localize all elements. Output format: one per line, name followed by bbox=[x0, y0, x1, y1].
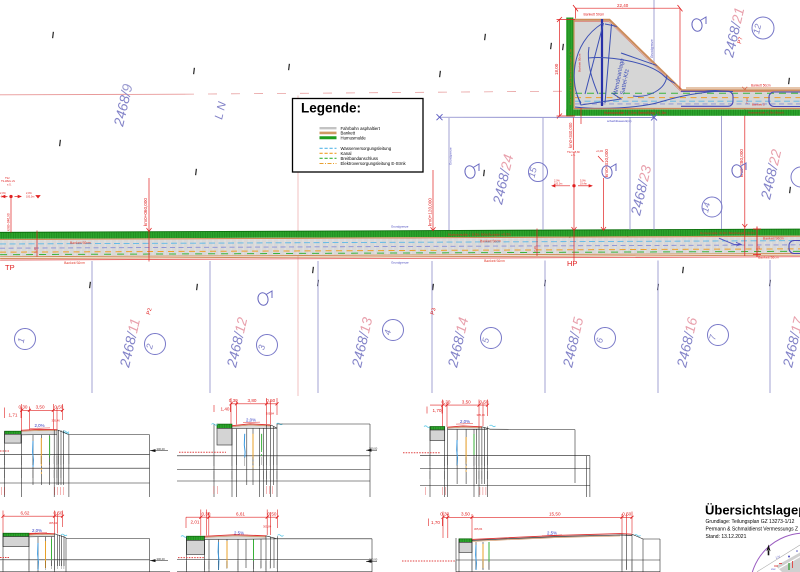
svg-text:18,00: 18,00 bbox=[554, 63, 559, 75]
svg-text:3,50: 3,50 bbox=[462, 400, 471, 405]
svg-text:+0,4%: +0,4% bbox=[596, 150, 604, 153]
svg-text:22,40: 22,40 bbox=[617, 3, 629, 8]
svg-text:305,84: 305,84 bbox=[263, 525, 272, 529]
svg-text:Humusmulde + 0,3m; Böschungen: Humusmulde + 0,3m; Böschungen +0,3m bbox=[448, 233, 511, 237]
svg-text:1,70: 1,70 bbox=[431, 520, 440, 525]
svg-text:7,10: 7,10 bbox=[745, 98, 749, 104]
svg-text:2,0%: 2,0% bbox=[32, 528, 42, 533]
svg-text:TP: TP bbox=[5, 263, 15, 272]
svg-text:15,50: 15,50 bbox=[549, 512, 561, 517]
svg-text:Humusmulde + 0,3m Berm/Böschu: Humusmulde + 0,3m Berm/Böschungen +1,3m bbox=[569, 48, 573, 105]
svg-text:0,30: 0,30 bbox=[19, 405, 28, 410]
svg-text:Bankett 50cm: Bankett 50cm bbox=[484, 259, 505, 263]
svg-text:0,30: 0,30 bbox=[229, 398, 238, 403]
svg-text:e.S.: e.S. bbox=[7, 183, 12, 186]
svg-text:1,70: 1,70 bbox=[433, 408, 442, 413]
svg-text:Übersichtslageplan: Übersichtslageplan bbox=[705, 503, 800, 518]
svg-text:3,50: 3,50 bbox=[36, 405, 45, 410]
svg-text:2,0%: 2,0% bbox=[460, 419, 470, 424]
svg-text:7,10: 7,10 bbox=[533, 246, 537, 252]
svg-text:3,80: 3,80 bbox=[248, 398, 257, 403]
svg-text:Grundgrenze: Grundgrenze bbox=[391, 261, 409, 265]
svg-text:2,0%: 2,0% bbox=[35, 423, 45, 428]
svg-text:305,46: 305,46 bbox=[477, 413, 486, 417]
svg-text:Legende:: Legende: bbox=[301, 101, 361, 116]
svg-text:19,4m: 19,4m bbox=[580, 183, 587, 186]
svg-text:Bankett 50cm: Bankett 50cm bbox=[763, 236, 784, 240]
svg-text:0,50: 0,50 bbox=[268, 512, 277, 517]
svg-text:0,50: 0,50 bbox=[480, 400, 489, 405]
svg-text:Grundlage: Teilungsplan GZ 132: Grundlage: Teilungsplan GZ 13273-1/12 bbox=[706, 519, 795, 525]
svg-text:1,71: 1,71 bbox=[9, 412, 18, 417]
svg-text:0,50: 0,50 bbox=[622, 512, 631, 517]
svg-text:305,84: 305,84 bbox=[266, 412, 275, 416]
svg-text:Elektroversorgungsleitung E-St: Elektroversorgungsleitung E-Strnk bbox=[341, 161, 407, 166]
svg-text:Bankett 50cm: Bankett 50cm bbox=[480, 239, 501, 243]
svg-text:6,61: 6,61 bbox=[236, 512, 245, 517]
svg-text:Grundgrenze: Grundgrenze bbox=[650, 39, 654, 58]
svg-text:305,84: 305,84 bbox=[474, 527, 483, 531]
svg-text:100,0m: 100,0m bbox=[26, 195, 34, 198]
svg-text:7,10: 7,10 bbox=[757, 246, 761, 252]
svg-text:300,00: 300,00 bbox=[369, 558, 378, 562]
svg-text:e.S.: e.S. bbox=[571, 154, 576, 157]
svg-text:0,30: 0,30 bbox=[440, 512, 449, 517]
svg-text:Humusmulde +0,3m; Böschungen +: Humusmulde +0,3m; Böschungen +0,3m bbox=[700, 231, 755, 235]
svg-text:Bankett 50cm: Bankett 50cm bbox=[70, 241, 91, 245]
svg-text:Stand: 13.12.2021: Stand: 13.12.2021 bbox=[706, 534, 747, 540]
svg-text:0,30: 0,30 bbox=[202, 512, 211, 517]
svg-text:2,0%: 2,0% bbox=[246, 417, 256, 422]
svg-text:km0+120,000: km0+120,000 bbox=[427, 198, 432, 226]
svg-text:km0+046,90: km0+046,90 bbox=[7, 213, 11, 231]
svg-text:300,00: 300,00 bbox=[369, 446, 378, 450]
svg-text:xxx: xxx bbox=[771, 567, 776, 571]
svg-text:Humusmulde +0,3m; Bösch.: Humusmulde +0,3m; Bösch. bbox=[748, 110, 785, 114]
svg-text:Bankett 50cm: Bankett 50cm bbox=[584, 13, 605, 17]
svg-text:3,50: 3,50 bbox=[461, 512, 470, 517]
svg-text:0,30: 0,30 bbox=[442, 400, 451, 405]
svg-text:2,5%: 2,5% bbox=[547, 530, 557, 535]
svg-text:300,00: 300,00 bbox=[157, 447, 166, 451]
svg-text:Humusmulde + 0,3 m; Berm/Bösp.: Humusmulde + 0,3 m; Berm/Bösp. +1,3m bbox=[604, 111, 667, 115]
svg-text:Grundgrenze: Grundgrenze bbox=[391, 225, 409, 229]
svg-text:Grundgrenze: Grundgrenze bbox=[449, 147, 453, 165]
svg-text:305,62: 305,62 bbox=[49, 521, 58, 525]
svg-text:Permann & Schmaldienst Vermess: Permann & Schmaldienst Vermessungs Z bbox=[706, 527, 799, 533]
svg-text:0,50: 0,50 bbox=[54, 511, 63, 516]
svg-text:HP: HP bbox=[567, 259, 577, 268]
svg-text:0,50: 0,50 bbox=[266, 398, 275, 403]
svg-text:2,01: 2,01 bbox=[191, 520, 200, 525]
svg-text:Bankett 50cm: Bankett 50cm bbox=[64, 261, 85, 265]
svg-text:Bankett 50cm: Bankett 50cm bbox=[758, 255, 779, 259]
svg-text:305,46: 305,46 bbox=[52, 418, 61, 422]
svg-text:300,00: 300,00 bbox=[157, 557, 166, 561]
svg-text:km0+310,000: km0+310,000 bbox=[604, 149, 609, 177]
svg-text:6,62: 6,62 bbox=[21, 511, 30, 516]
svg-text:schachtbauwerk(m): schachtbauwerk(m) bbox=[607, 119, 631, 123]
svg-text:Humusmulde: Humusmulde bbox=[341, 135, 367, 140]
svg-text:Bankett 5: Bankett 5 bbox=[752, 102, 765, 106]
svg-text:km0+060,000: km0+060,000 bbox=[143, 198, 148, 226]
svg-text:Bankett 50cm: Bankett 50cm bbox=[751, 83, 771, 87]
svg-text:km0+340,000: km0+340,000 bbox=[568, 122, 573, 148]
svg-text:1,10: 1,10 bbox=[33, 247, 37, 253]
svg-text:1,40: 1,40 bbox=[221, 406, 230, 411]
svg-text:Bankett 50cm: Bankett 50cm bbox=[578, 53, 582, 72]
svg-text:0,50: 0,50 bbox=[54, 405, 63, 410]
